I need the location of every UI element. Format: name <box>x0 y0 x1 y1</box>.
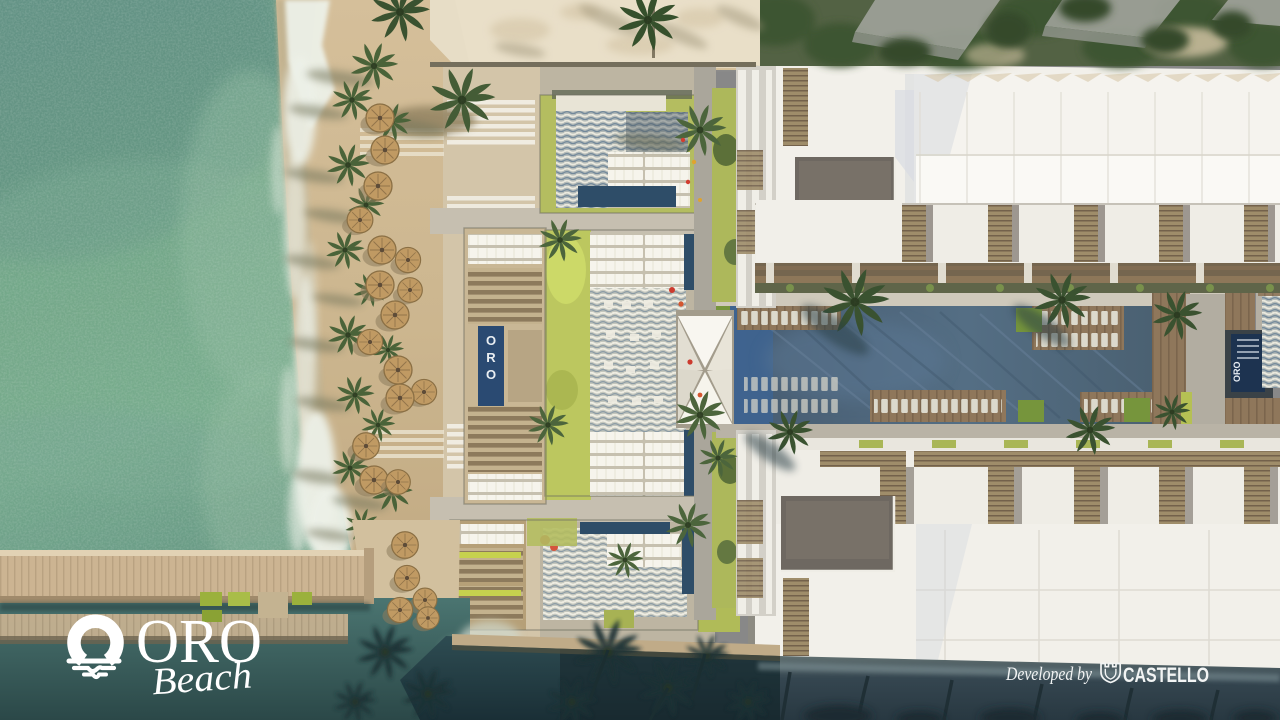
svg-text:Developed by: Developed by <box>1005 664 1092 685</box>
svg-text:Beach: Beach <box>151 654 254 703</box>
svg-text:O: O <box>486 333 496 348</box>
svg-text:O: O <box>486 367 496 382</box>
svg-text:ORO: ORO <box>1232 361 1242 382</box>
svg-text:CASTELLO: CASTELLO <box>1123 664 1209 687</box>
svg-text:R: R <box>486 350 496 365</box>
